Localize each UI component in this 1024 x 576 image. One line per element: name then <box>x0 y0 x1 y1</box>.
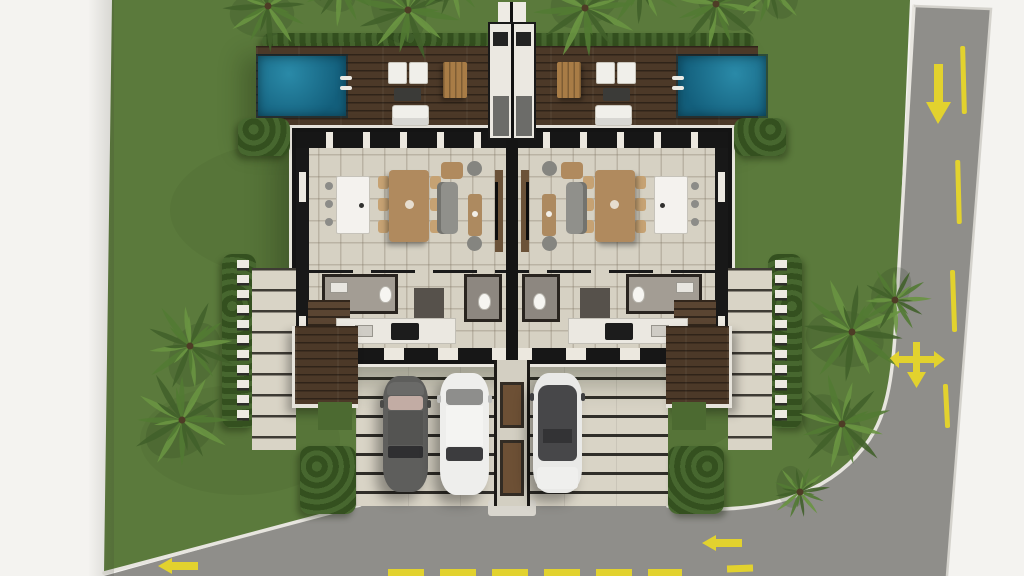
pool-ladder <box>340 76 352 80</box>
pool-ladder <box>340 86 352 90</box>
car-rear-glass <box>543 429 572 443</box>
garden-hedge <box>238 118 290 156</box>
sun-lounger <box>409 62 428 84</box>
car-glass-roof <box>538 385 577 461</box>
car-mirror <box>530 393 534 401</box>
pool-ladder <box>672 86 684 90</box>
car-hood <box>387 382 424 395</box>
car-roof <box>388 411 423 445</box>
central-entry-core <box>488 22 536 140</box>
car-rear-glass <box>388 446 423 458</box>
utility-box <box>493 32 508 46</box>
side-path <box>252 268 296 450</box>
car-gray <box>383 376 428 492</box>
gate-panel <box>500 440 524 496</box>
outdoor-sofa <box>595 105 632 126</box>
sun-lounger <box>388 62 407 84</box>
car-mirror <box>437 395 441 403</box>
car-white <box>440 373 489 495</box>
entry-mat <box>493 96 509 136</box>
driveway-hedge <box>300 446 356 514</box>
grass-patch <box>672 402 706 430</box>
party-wall-line <box>510 2 513 24</box>
swimming-pool <box>258 56 346 116</box>
entry-mat <box>516 96 532 136</box>
utility-box <box>516 32 531 46</box>
entry-wall-cap <box>498 2 526 24</box>
car-mirror <box>581 393 585 401</box>
sun-lounger <box>596 62 615 84</box>
entry-walkway <box>494 360 530 506</box>
car-dark-roof <box>533 373 582 493</box>
center-dash <box>727 565 753 573</box>
pool-ladder <box>672 76 684 80</box>
gate-panel <box>500 382 524 428</box>
party-wall-line <box>511 24 514 138</box>
sun-lounger <box>617 62 636 84</box>
car-roof <box>446 406 483 446</box>
car-mirror <box>488 395 492 403</box>
center-dash <box>596 569 632 576</box>
car-mirror <box>427 400 431 408</box>
center-dash <box>544 569 580 576</box>
carport-roof <box>666 326 732 408</box>
carport-roof <box>292 326 358 408</box>
outdoor-dining-table <box>443 62 467 98</box>
center-dash <box>440 569 476 576</box>
driveway-hedge <box>668 446 724 514</box>
outdoor-dining-table <box>557 62 581 98</box>
car-bumper <box>537 467 578 489</box>
center-dash <box>492 569 528 576</box>
center-dash <box>648 569 682 576</box>
car-mirror <box>380 400 384 408</box>
site-plan-rendering <box>0 0 1024 576</box>
center-dash <box>388 569 424 576</box>
swimming-pool <box>678 56 766 116</box>
car-windshield <box>388 396 423 410</box>
car-rear-glass <box>446 447 483 461</box>
grass-patch <box>318 402 352 430</box>
garden-hedge <box>734 118 786 156</box>
coffee-table <box>603 88 630 101</box>
garden-fence <box>775 260 787 422</box>
outdoor-sofa <box>392 105 429 126</box>
car-windshield <box>446 389 483 405</box>
coffee-table <box>394 88 421 101</box>
garden-fence <box>237 260 249 422</box>
plot-edge-shadow <box>88 0 114 576</box>
side-path <box>728 268 772 450</box>
